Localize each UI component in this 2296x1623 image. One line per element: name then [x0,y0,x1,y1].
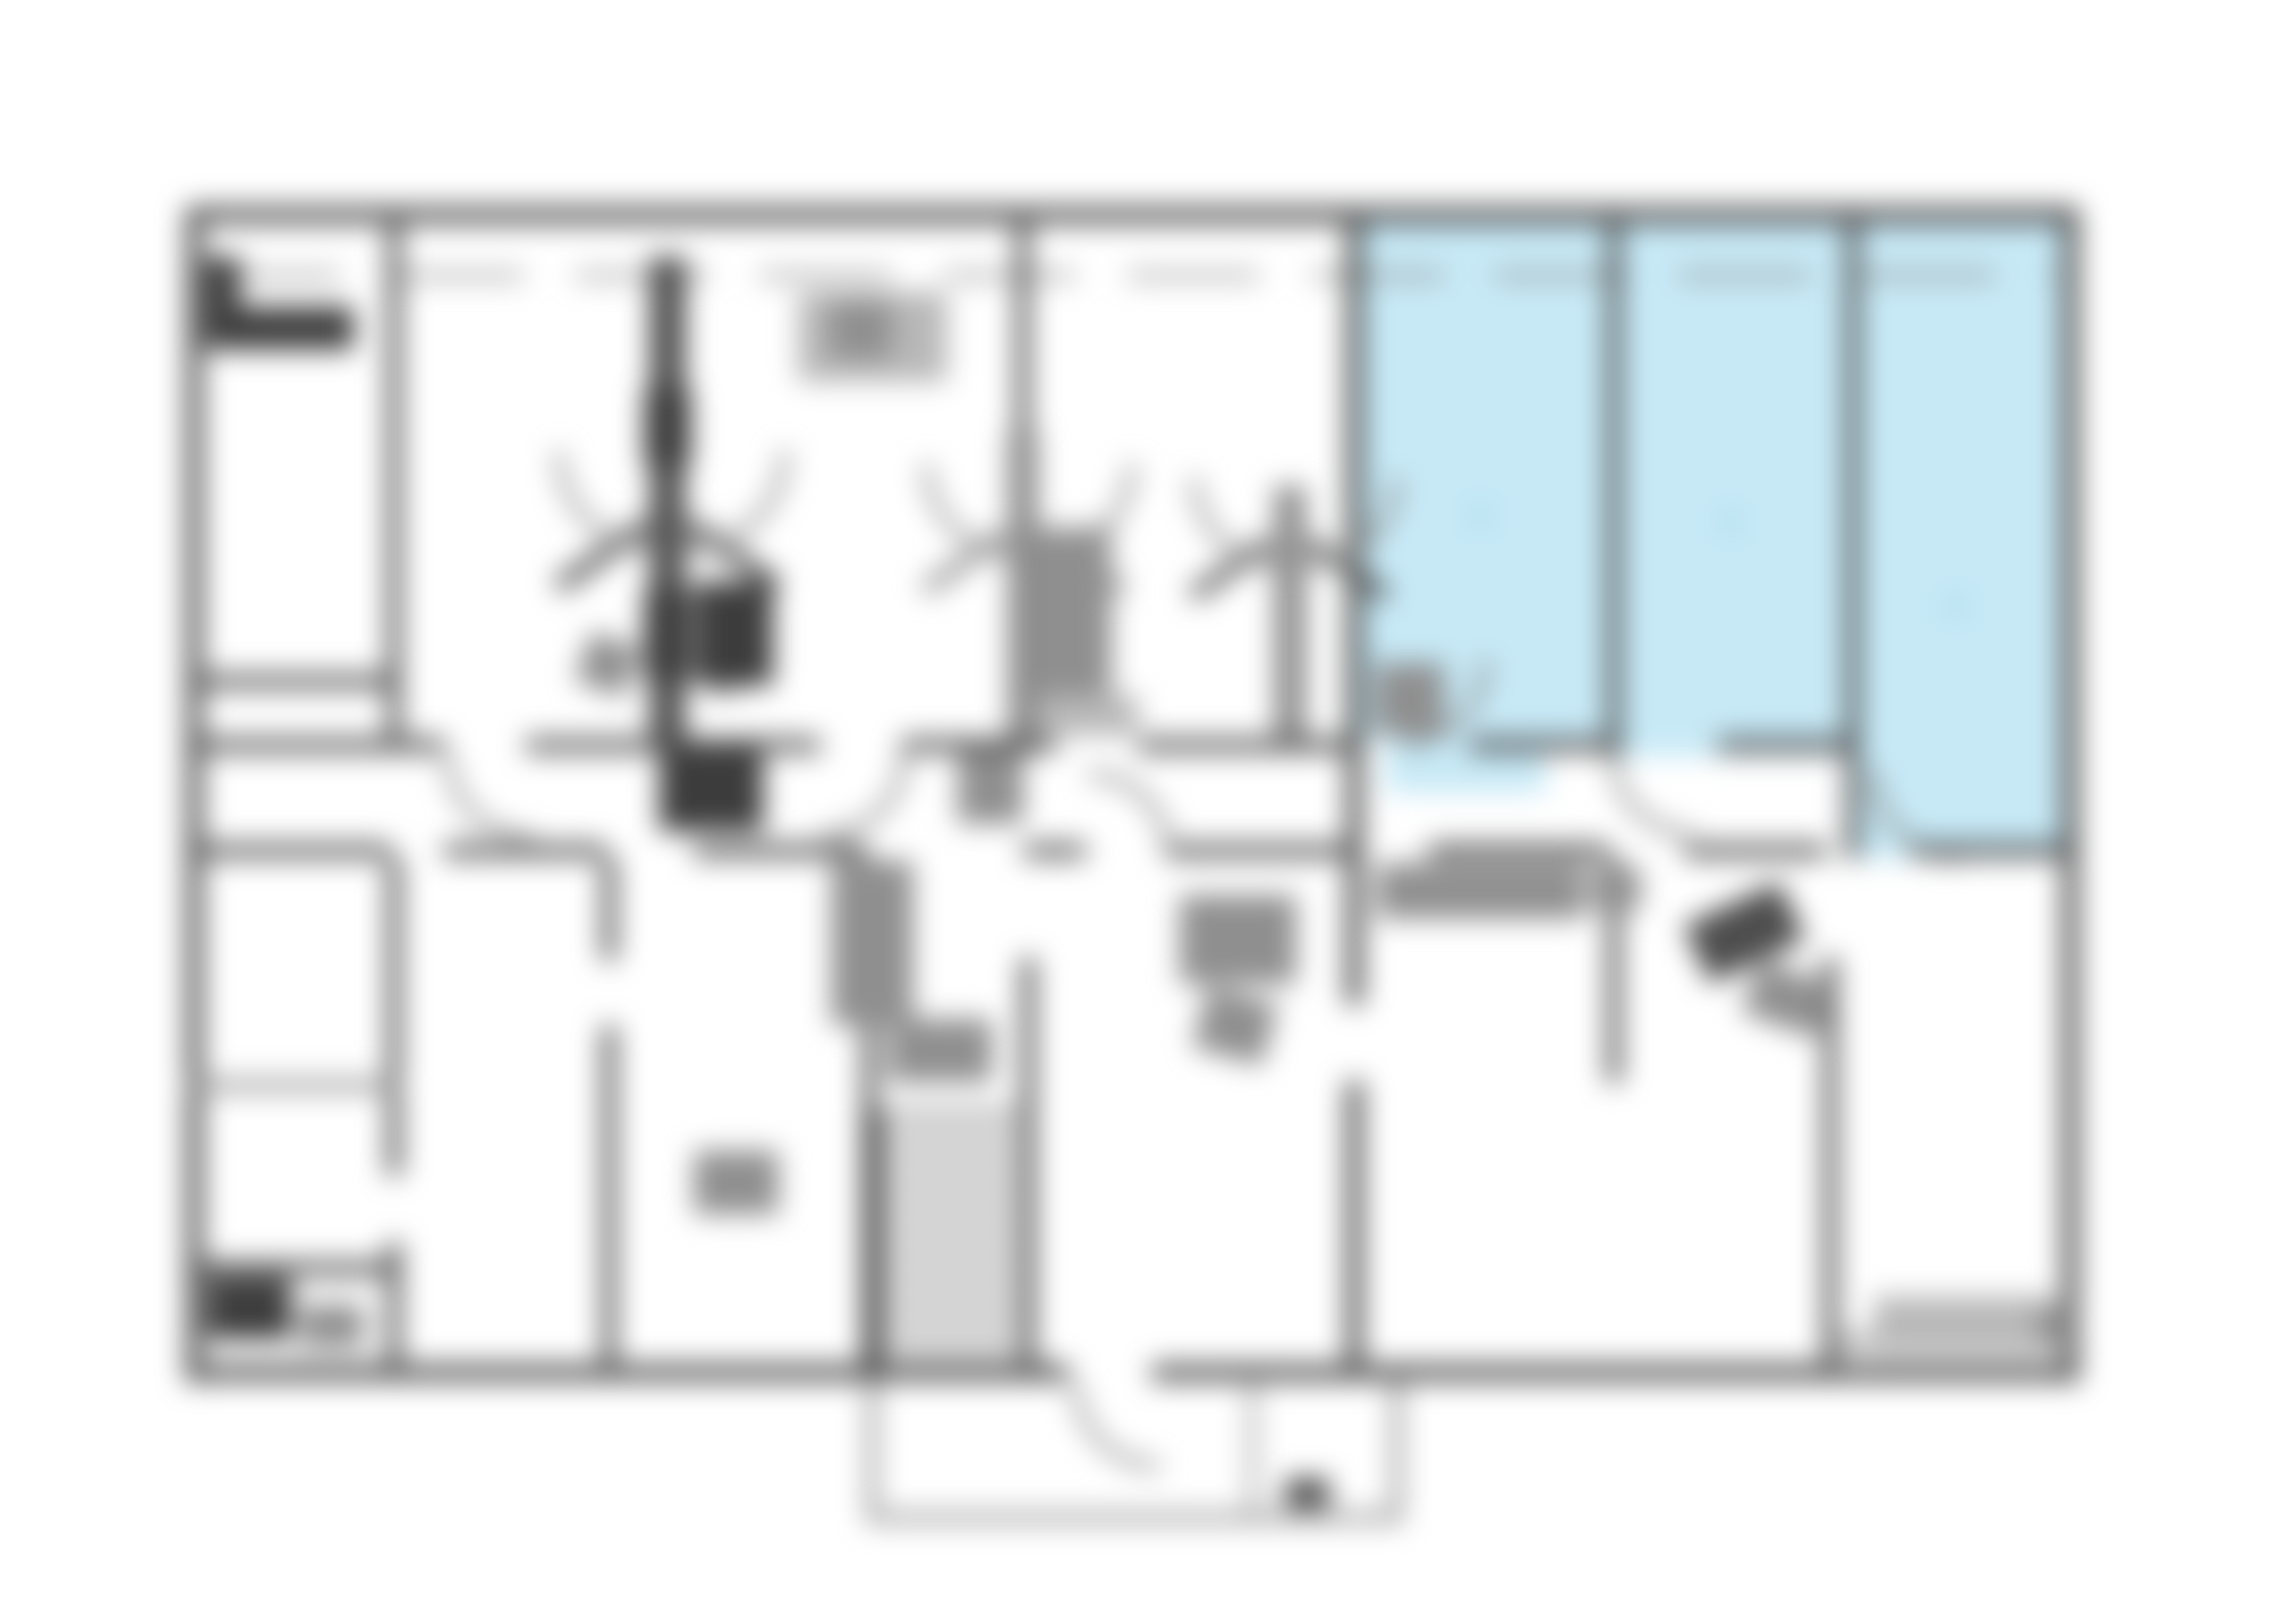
wall [602,858,616,960]
highlighted-room-middle [1621,223,1846,756]
bath-fixture [1741,958,1833,1038]
furniture-block [2039,1303,2069,1348]
corridor-wall [1428,844,1608,858]
door-swing-arc [1610,755,1693,838]
door-swing-arc [822,754,908,840]
stair-landing [888,1019,992,1082]
bath-fixture [1180,895,1296,984]
corridor-wall [1023,844,1086,858]
furniture-block [958,744,1023,824]
outer-wall-right [2062,207,2079,1382]
furniture-block [1873,1296,2048,1353]
wall [1346,1081,1363,1364]
corridor-wall [1685,844,1826,858]
door-swing-arc [687,451,789,553]
bath-fixture [1192,985,1278,1066]
kitchen-block [1590,867,1640,910]
corridor-wall [1138,738,1347,752]
outer-wall-bottom [186,1364,1069,1381]
storage-unit [205,257,240,348]
furniture-block [694,1150,779,1214]
wall [387,858,401,1175]
corridor-wall [186,738,444,752]
corridor-wall [694,844,865,858]
wall [1846,207,1860,859]
floor-plan [0,0,2296,1623]
furniture-block [829,300,892,359]
wall [186,1080,401,1091]
corridor-wall [902,738,1056,752]
corridor-wall [526,738,820,752]
furniture-block [207,1278,291,1339]
wall [602,1026,616,1364]
terrace-step [1285,1478,1329,1509]
corridor-wall [1718,738,1847,752]
furniture-block [831,860,913,1026]
corridor-wall [186,844,390,858]
door-swing-arc [1088,770,1173,855]
dark-door-block [695,581,773,686]
terrace-divider [1249,1382,1256,1518]
furniture-block [1038,695,1139,736]
dark-door-block [659,741,763,831]
outer-wall-top [186,207,2079,223]
stair-wall-dark [862,1110,876,1364]
wall [186,1261,401,1275]
corridor-wall [1470,738,1608,752]
wall [387,1242,401,1364]
furniture-block [574,631,640,697]
ceiling-lamp-mark [1721,513,1739,532]
door-swing-arc [444,754,532,842]
furniture-block [300,1305,364,1348]
door-swing-arc [923,464,1018,559]
wall [1607,207,1621,756]
wall [1823,958,1837,1364]
outer-wall-left [186,207,203,1382]
staircase [876,1110,1030,1364]
wall [387,207,401,741]
kitchen-row [1377,863,1584,919]
window-band [208,272,2054,279]
corridor-wall [1164,844,1347,858]
wall [186,674,401,688]
corridor-wall [444,844,605,858]
wall [1346,858,1363,1005]
furniture-block [1035,527,1112,704]
chimney-block [644,590,691,680]
corridor-wall [1912,844,2062,858]
ceiling-lamp-mark [1947,597,1965,615]
ceiling-lamp-mark [1471,507,1489,525]
highlighted-room-right [1860,223,2062,859]
door-swing-arc [555,451,657,553]
outer-wall-bottom [1152,1364,2079,1381]
door-swing-arc [1191,477,1282,569]
